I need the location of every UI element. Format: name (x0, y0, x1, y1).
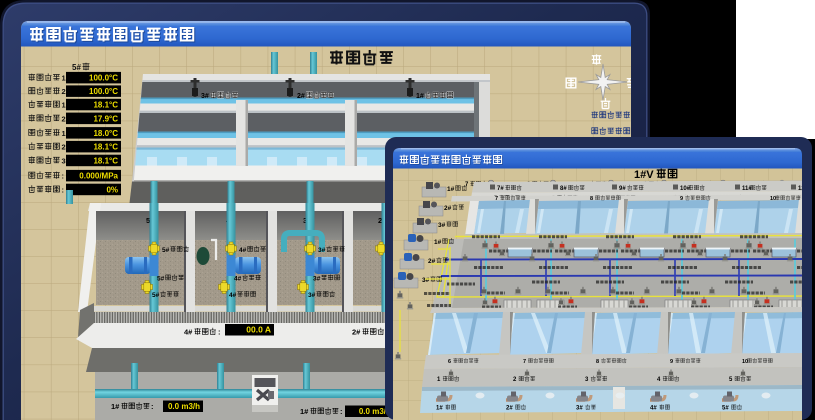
svg-text:4#: 4# (650, 406, 657, 412)
svg-text:18.0°C: 18.0°C (93, 129, 118, 138)
svg-text:100.0°C: 100.0°C (89, 74, 118, 83)
svg-text::: : (151, 402, 154, 411)
svg-text:2#: 2# (297, 93, 305, 100)
svg-text:4#: 4# (239, 247, 247, 254)
svg-text:1#: 1# (416, 93, 424, 100)
svg-text:7#: 7# (497, 186, 504, 192)
svg-text:100.0°C: 100.0°C (89, 87, 118, 96)
svg-text:5#: 5# (722, 406, 729, 412)
svg-text:8#: 8# (560, 186, 567, 192)
svg-text::: : (62, 172, 65, 181)
svg-text:7: 7 (523, 359, 526, 365)
svg-text:3#: 3# (313, 276, 321, 283)
svg-text:3#: 3# (201, 93, 209, 100)
svg-text:18.1°C: 18.1°C (93, 143, 118, 152)
svg-text::: : (218, 328, 221, 337)
svg-text:3#: 3# (308, 292, 316, 299)
svg-text:5#: 5# (157, 276, 165, 283)
svg-text:1#: 1# (436, 406, 443, 412)
svg-text:1#V: 1#V (634, 169, 654, 181)
svg-text:1#: 1# (300, 407, 309, 416)
svg-text:9#: 9# (619, 186, 626, 192)
svg-text:1#: 1# (447, 186, 455, 193)
svg-text:9: 9 (670, 359, 673, 365)
svg-text:10: 10 (742, 359, 748, 365)
svg-text:3#: 3# (318, 247, 326, 254)
svg-text:11#: 11# (742, 186, 752, 192)
svg-text:3#: 3# (576, 406, 583, 412)
svg-text:2#: 2# (352, 328, 361, 337)
svg-text:2#: 2# (506, 406, 513, 412)
svg-text:0%: 0% (106, 185, 118, 194)
svg-text::: : (62, 185, 65, 194)
svg-text:5#: 5# (162, 247, 170, 254)
svg-text:4#: 4# (229, 292, 237, 299)
svg-text:17.9°C: 17.9°C (93, 114, 118, 123)
svg-text:3#: 3# (422, 277, 430, 284)
svg-text:4#: 4# (184, 328, 193, 337)
svg-text::: : (340, 407, 343, 416)
svg-text:2#: 2# (444, 205, 452, 212)
svg-text:3#: 3# (438, 222, 446, 229)
svg-text:9: 9 (680, 196, 683, 202)
svg-text:18.1°C: 18.1°C (93, 156, 118, 165)
svg-text:6: 6 (448, 359, 451, 365)
svg-text:0.000/MPa: 0.000/MPa (79, 172, 118, 181)
svg-text:5#: 5# (152, 292, 160, 299)
svg-text:1#: 1# (434, 239, 442, 246)
svg-text:10: 10 (770, 196, 776, 202)
svg-text:10#: 10# (680, 186, 691, 192)
svg-text:5#: 5# (72, 63, 81, 72)
svg-text:00.0 A: 00.0 A (246, 325, 271, 335)
svg-text:8: 8 (596, 359, 599, 365)
svg-text:7: 7 (495, 196, 498, 202)
svg-text:0.0 m3/: 0.0 m3/ (359, 407, 387, 416)
svg-text:1#: 1# (111, 402, 120, 411)
svg-text:8: 8 (590, 196, 593, 202)
svg-text:0.0 m3/h: 0.0 m3/h (168, 402, 200, 411)
svg-text:18.1°C: 18.1°C (93, 101, 118, 110)
svg-text:4#: 4# (234, 276, 242, 283)
